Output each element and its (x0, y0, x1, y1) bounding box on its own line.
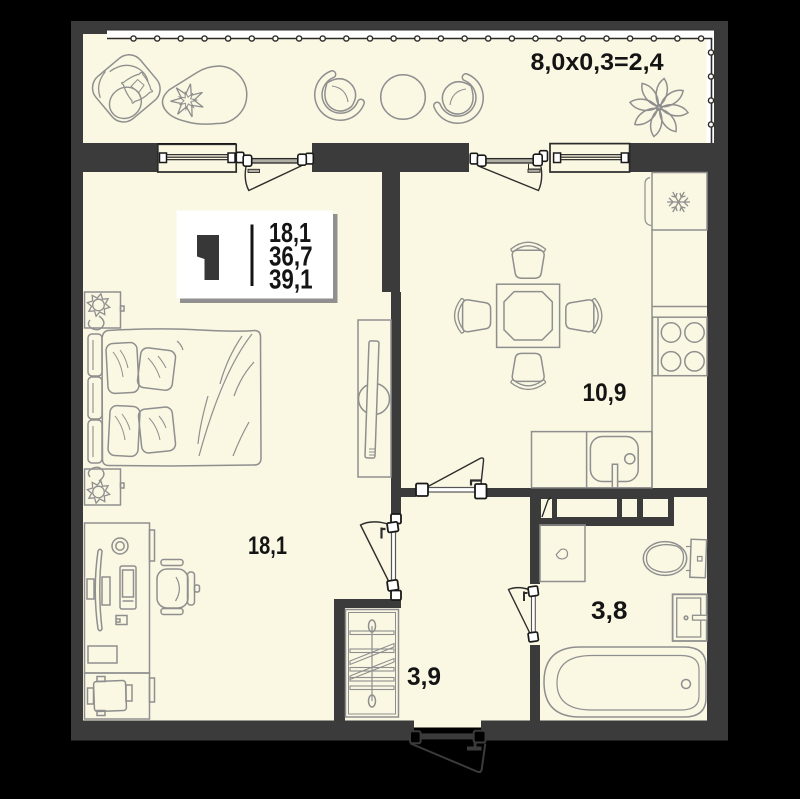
svg-text:3,9: 3,9 (407, 663, 441, 691)
svg-text:39,1: 39,1 (269, 264, 313, 295)
svg-text:10,9: 10,9 (583, 379, 627, 407)
svg-text:3,8: 3,8 (591, 597, 628, 625)
svg-text:18,1: 18,1 (248, 532, 287, 560)
svg-text:8,0x0,3=2,4: 8,0x0,3=2,4 (531, 49, 665, 76)
